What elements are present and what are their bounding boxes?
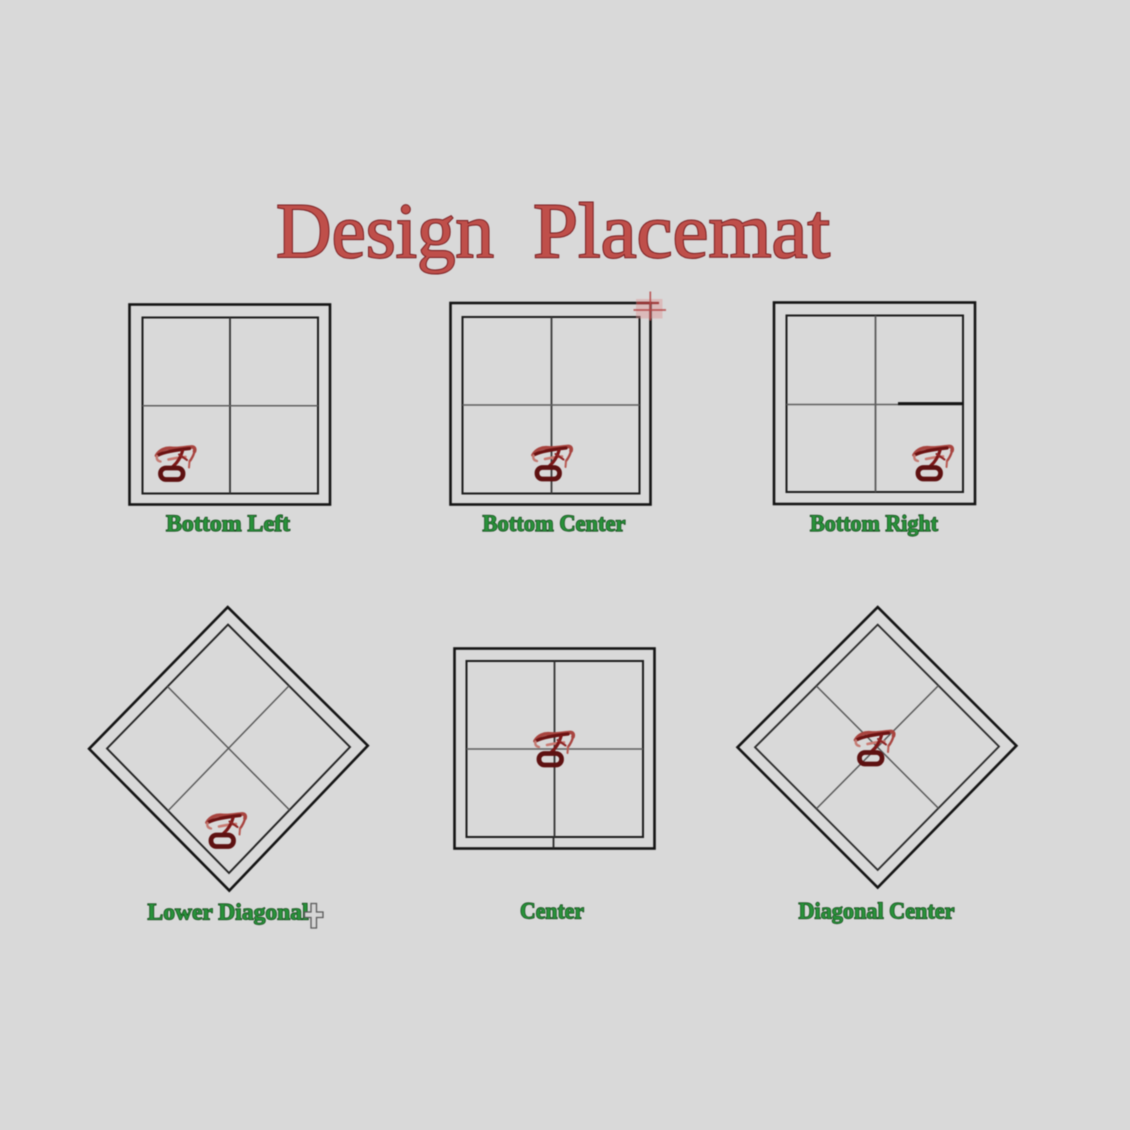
svg-text:Diagonal Center: Diagonal Center [799,899,955,925]
svg-text:Bottom Left: Bottom Left [166,511,290,537]
svg-text:Bottom Center: Bottom Center [483,511,626,537]
svg-text:Lower Diagonal: Lower Diagonal [148,900,309,926]
svg-text:Placemat: Placemat [533,187,830,274]
svg-text:Design: Design [276,187,494,274]
svg-text:Bottom Right: Bottom Right [810,511,938,537]
svg-text:Center: Center [520,899,584,925]
